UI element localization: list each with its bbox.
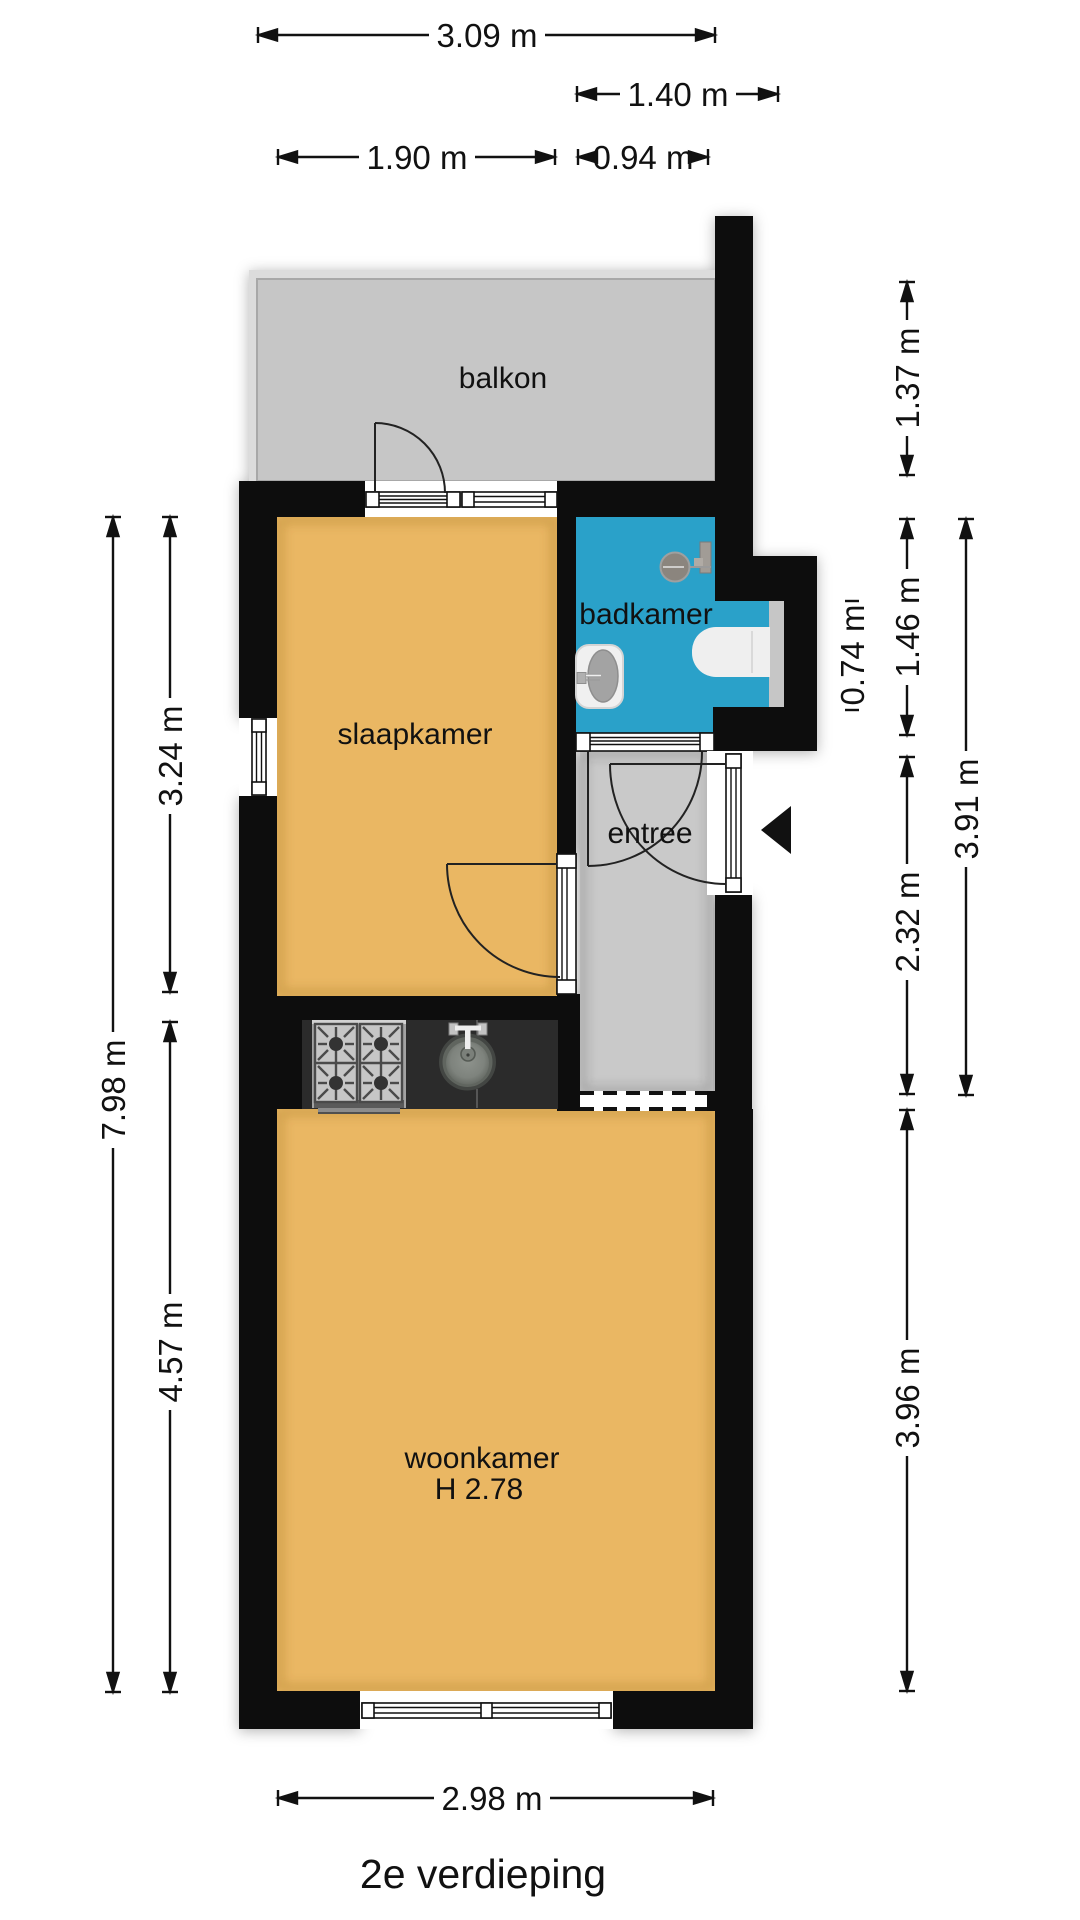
svg-text:1.46 m: 1.46 m <box>889 577 926 678</box>
svg-text:4.57 m: 4.57 m <box>152 1302 189 1403</box>
svg-text:2e verdieping: 2e verdieping <box>360 1851 606 1897</box>
svg-text:balkon: balkon <box>459 362 547 395</box>
svg-text:2.32 m: 2.32 m <box>889 872 926 973</box>
svg-text:woonkamer: woonkamer <box>403 1442 559 1475</box>
svg-text:1.37 m: 1.37 m <box>889 328 926 429</box>
svg-text:7.98 m: 7.98 m <box>95 1040 132 1141</box>
svg-text:H 2.78: H 2.78 <box>435 1473 523 1506</box>
svg-text:0.74 m: 0.74 m <box>834 605 871 706</box>
svg-text:3.96 m: 3.96 m <box>889 1348 926 1449</box>
svg-text:3.91 m: 3.91 m <box>948 759 985 860</box>
svg-text:3.24 m: 3.24 m <box>152 706 189 807</box>
svg-text:0.94 m: 0.94 m <box>593 139 694 176</box>
svg-text:badkamer: badkamer <box>579 598 712 631</box>
svg-text:1.40 m: 1.40 m <box>628 76 729 113</box>
svg-text:slaapkamer: slaapkamer <box>337 718 492 751</box>
svg-text:entree: entree <box>607 817 692 850</box>
svg-text:1.90 m: 1.90 m <box>367 139 468 176</box>
svg-text:2.98 m: 2.98 m <box>442 1780 543 1817</box>
svg-text:3.09 m: 3.09 m <box>437 17 538 54</box>
